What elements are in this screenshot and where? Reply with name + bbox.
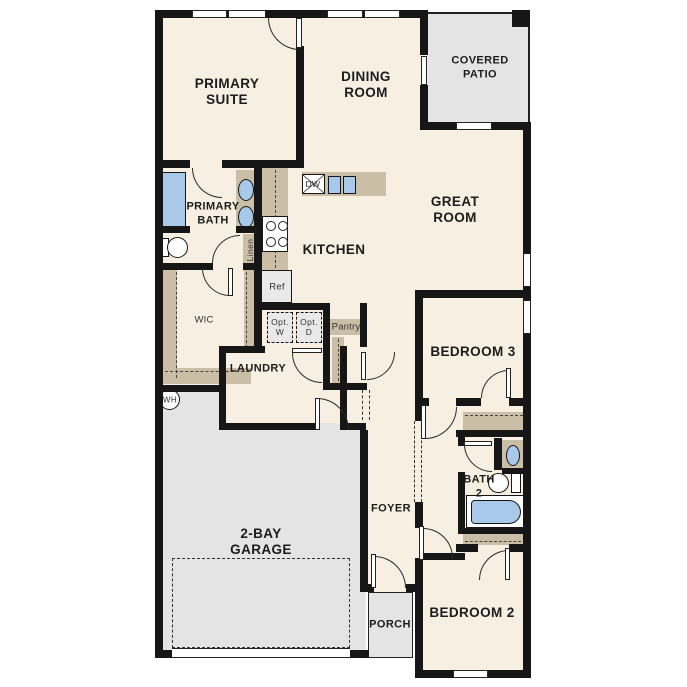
door-leaf [296, 18, 302, 48]
stove-burner [266, 221, 276, 231]
wall [456, 430, 531, 437]
bath2-sink-basin [506, 445, 520, 466]
dishwasher-label: DW [306, 179, 321, 189]
wall [415, 558, 423, 678]
sink-basin [238, 179, 254, 201]
wall [502, 468, 531, 474]
stove-burner [278, 237, 288, 247]
door-leaf [371, 554, 376, 588]
wall [155, 160, 190, 168]
door-leaf [361, 352, 366, 380]
door-leaf [315, 398, 320, 430]
window [456, 122, 492, 130]
door-leaf [506, 368, 511, 398]
room-label-great-room: GREATROOM [431, 194, 479, 226]
wall [219, 423, 317, 430]
pantry-label: Pantry [332, 322, 361, 333]
wall [360, 303, 367, 347]
wall [236, 226, 262, 233]
room-label-bedroom-2: BEDROOM 2 [429, 605, 514, 621]
window [523, 253, 531, 287]
refrigerator-label: Ref [269, 282, 284, 293]
garage-door-dashed-outline [172, 558, 350, 648]
wall [523, 122, 531, 253]
toilet-tank [511, 471, 521, 493]
wic-shelf-dashed-line [246, 272, 247, 348]
wall [219, 346, 265, 353]
room-label-garage: 2-BAYGARAGE [230, 526, 292, 558]
wall [523, 334, 531, 678]
wall [458, 528, 531, 534]
kitchen-sink-basin [328, 176, 341, 194]
wall [415, 502, 423, 528]
cased-opening [362, 390, 370, 420]
window [327, 10, 363, 18]
outside-ground [0, 658, 416, 687]
wall [492, 122, 531, 130]
room-label-primary-bath: PRIMARYBATH [186, 201, 239, 228]
room-label-bath-2: BATH2 [463, 474, 494, 501]
wall [323, 303, 330, 390]
room-label-primary-suite: PRIMARYSUITE [195, 76, 260, 108]
wall [219, 346, 226, 430]
optional-dryer-label: Opt.D [300, 317, 318, 337]
sink-basin [238, 206, 254, 228]
optional-washer-label: Opt.W [271, 317, 289, 337]
room-label-laundry: LAUNDRY [230, 362, 286, 376]
wall [155, 385, 226, 392]
window [364, 10, 400, 18]
door-leaf [419, 526, 424, 560]
wall [509, 398, 528, 406]
window [192, 10, 227, 18]
wall [494, 438, 502, 470]
room-label-dining-room: DININGROOM [341, 69, 391, 101]
room-label-covered-patio: COVEREDPATIO [451, 55, 508, 82]
room-label-foyer: FOYER [371, 502, 411, 516]
kitchen-sink-basin [343, 176, 356, 194]
closet-dashed-line [465, 541, 526, 542]
wic-shelf [163, 270, 177, 380]
wall [415, 290, 423, 400]
bathtub [471, 500, 521, 524]
wall [347, 423, 366, 430]
pantry-shelf-dashed-line [338, 339, 339, 381]
door-leaf [505, 548, 510, 580]
door-leaf [421, 405, 426, 439]
wall [222, 160, 304, 168]
wall [415, 290, 531, 298]
stove-burner [278, 221, 288, 231]
stove-burner [266, 237, 276, 247]
water-heater-label: WH [163, 396, 177, 405]
floor-plan: PRIMARYSUITE DININGROOM COVEREDPATIO GRE… [0, 0, 687, 687]
wall [509, 544, 528, 552]
wall [512, 10, 530, 27]
wall [456, 398, 481, 406]
wall [254, 303, 330, 310]
wall [155, 10, 163, 658]
window [228, 10, 266, 18]
wall [350, 650, 369, 658]
wall [155, 226, 190, 233]
toilet-bowl [167, 237, 188, 258]
wall [420, 85, 428, 130]
wall [254, 168, 262, 353]
door-leaf [228, 268, 233, 296]
door-leaf [464, 441, 492, 446]
room-label-kitchen: KITCHEN [303, 242, 366, 258]
room-label-porch: PORCH [369, 618, 411, 632]
window [453, 670, 488, 678]
linen-label: Linen [245, 239, 255, 262]
wall [296, 46, 304, 168]
wall [243, 263, 262, 270]
wall [428, 122, 456, 130]
window [523, 300, 531, 334]
room-label-wic: WIC [194, 315, 213, 326]
door-leaf [292, 348, 322, 353]
closet-dashed-line [465, 415, 523, 416]
room-label-bedroom-3: BEDROOM 3 [430, 344, 515, 360]
wall [420, 10, 428, 55]
garage-door-opening [172, 648, 350, 658]
wic-shelf-dashed-line [176, 272, 177, 378]
wall [456, 544, 478, 552]
wall [155, 650, 172, 658]
wall [360, 430, 368, 592]
window [421, 56, 427, 85]
